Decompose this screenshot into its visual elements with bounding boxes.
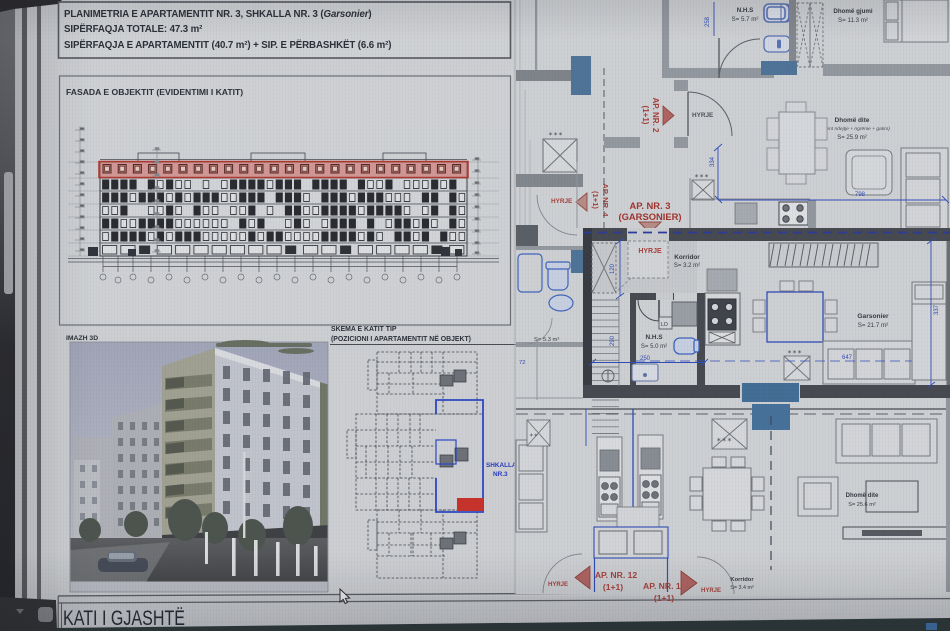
svg-text:S= 11.3 m²: S= 11.3 m² [838, 17, 868, 24]
svg-text:HYRJE: HYRJE [692, 112, 714, 119]
svg-text:(1+1): (1+1) [603, 582, 623, 592]
svg-text:Dhomë dite: Dhomë dite [835, 117, 870, 124]
svg-text:258: 258 [705, 16, 711, 27]
svg-text:✶✶✶: ✶✶✶ [548, 131, 563, 138]
svg-text:FASADA E OBJEKTIT (EVIDENTIMI: FASADA E OBJEKTIT (EVIDENTIMI I KATIT) [66, 87, 243, 97]
svg-text:S= 3.4 m²: S= 3.4 m² [730, 585, 754, 591]
svg-text:290: 290 [610, 335, 616, 346]
svg-text:HYRJE: HYRJE [638, 248, 662, 255]
svg-text:N.H.S: N.H.S [737, 7, 754, 14]
svg-text:Korridor: Korridor [730, 577, 754, 583]
svg-text:✶✶✶: ✶✶✶ [787, 349, 802, 356]
svg-text:HYRJE: HYRJE [701, 588, 721, 594]
svg-text:SIPËRFAQJA TOTALE: 47.3 m²: SIPËRFAQJA TOTALE: 47.3 m² [64, 24, 203, 35]
svg-text:PLANIMETRIA E APARTAMENTIT NR.: PLANIMETRIA E APARTAMENTIT NR. 3, SHKALL… [64, 9, 372, 20]
svg-text:NR.3: NR.3 [493, 471, 508, 478]
svg-text:SHKALLA: SHKALLA [486, 462, 517, 469]
svg-text:334: 334 [710, 156, 716, 167]
svg-text:✶✶✶: ✶✶✶ [716, 437, 732, 444]
svg-text:(1+1): (1+1) [591, 191, 600, 209]
svg-text:S= 5.0 m²: S= 5.0 m² [641, 344, 667, 350]
svg-text:S= 21.7 m²: S= 21.7 m² [858, 322, 888, 329]
svg-text:S= 5.7 m²: S= 5.7 m² [732, 16, 759, 23]
svg-text:(GARSONIER): (GARSONIER) [618, 211, 681, 222]
svg-text:SIPËRFAQJA E APARTAMENTIT (40.: SIPËRFAQJA E APARTAMENTIT (40.7 m²) + SI… [64, 40, 391, 51]
svg-text:KATI I GJASHTË: KATI I GJASHTË [63, 606, 185, 630]
svg-text:Garsonier: Garsonier [857, 313, 889, 320]
svg-text:N.H.S: N.H.S [645, 334, 663, 341]
svg-text:AP. NR. 11: AP. NR. 11 [643, 581, 685, 591]
svg-text:✶✶✶: ✶✶✶ [694, 173, 709, 180]
svg-text:✶✶: ✶✶ [529, 432, 539, 439]
svg-text:647: 647 [842, 355, 853, 361]
svg-text:S= 5.3 m²: S= 5.3 m² [534, 337, 559, 343]
svg-text:IMAZH 3D: IMAZH 3D [66, 335, 98, 342]
svg-text:AP. NR. 12: AP. NR. 12 [595, 570, 638, 580]
svg-text:HYRJE: HYRJE [551, 198, 573, 205]
svg-text:Dhomë dite: Dhomë dite [846, 493, 879, 499]
svg-text:(POZICIONI I APARTAMENTIT NË O: (POZICIONI I APARTAMENTIT NË OBJEKT) [331, 335, 471, 343]
svg-text:SKEMA E KATIT TIP: SKEMA E KATIT TIP [331, 326, 397, 333]
svg-text:S= 25.6 m²: S= 25.6 m² [848, 502, 876, 508]
svg-text:AP. NR. 3: AP. NR. 3 [630, 200, 671, 211]
svg-text:(1+1): (1+1) [641, 106, 650, 125]
svg-text:AP. NR. 4: AP. NR. 4 [601, 183, 610, 217]
svg-text:(1+1): (1+1) [654, 593, 674, 603]
svg-text:Dhomë gjumi: Dhomë gjumi [833, 8, 872, 15]
svg-text:120: 120 [610, 263, 616, 274]
svg-text:HYRJE: HYRJE [548, 582, 568, 588]
svg-text:S= 25.9 m²: S= 25.9 m² [837, 135, 867, 141]
svg-text:AP. NR. 2: AP. NR. 2 [651, 98, 660, 134]
svg-text:LD: LD [661, 322, 668, 328]
svg-text:337: 337 [934, 304, 940, 315]
svg-text:S= 3.2 m²: S= 3.2 m² [674, 263, 700, 269]
svg-text:Korridor: Korridor [674, 254, 700, 261]
svg-text:72: 72 [519, 360, 525, 366]
svg-text:798: 798 [855, 192, 866, 198]
